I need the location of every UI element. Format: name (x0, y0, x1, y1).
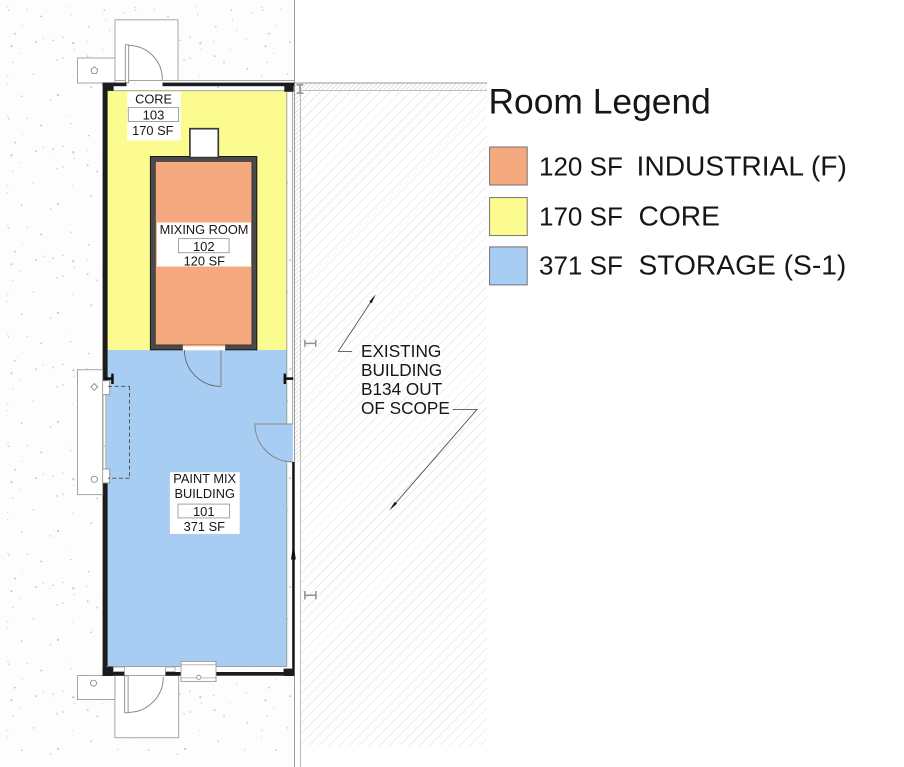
svg-text:OF SCOPE: OF SCOPE (361, 398, 450, 418)
svg-text:MIXING ROOM: MIXING ROOM (160, 222, 249, 237)
svg-text:170 SF: 170 SF (539, 201, 623, 231)
svg-text:EXISTING: EXISTING (361, 341, 441, 361)
svg-text:120 SF: 120 SF (184, 254, 225, 269)
svg-text:Room Legend: Room Legend (489, 82, 711, 122)
svg-text:BUILDING: BUILDING (361, 360, 442, 380)
svg-text:103: 103 (143, 108, 165, 123)
svg-text:120 SF: 120 SF (539, 151, 623, 181)
svg-text:371 SF: 371 SF (184, 519, 225, 534)
svg-text:STORAGE (S-1): STORAGE (S-1) (639, 249, 847, 281)
svg-text:CORE: CORE (639, 199, 720, 231)
svg-text:170 SF: 170 SF (132, 123, 173, 138)
svg-text:102: 102 (193, 239, 215, 254)
svg-text:371 SF: 371 SF (539, 251, 623, 281)
svg-text:CORE: CORE (135, 91, 172, 106)
svg-text:PAINT MIX: PAINT MIX (173, 471, 236, 486)
svg-text:B134 OUT: B134 OUT (361, 379, 443, 399)
svg-text:BUILDING: BUILDING (174, 486, 234, 501)
svg-text:101: 101 (193, 504, 215, 519)
svg-text:INDUSTRIAL (F): INDUSTRIAL (F) (637, 149, 847, 181)
